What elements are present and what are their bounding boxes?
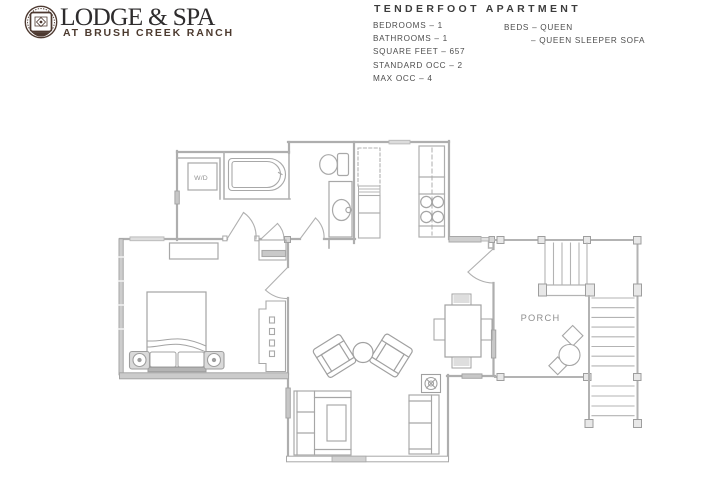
svg-text:PORCH: PORCH [521, 313, 561, 323]
svg-text:W/D: W/D [194, 175, 208, 182]
